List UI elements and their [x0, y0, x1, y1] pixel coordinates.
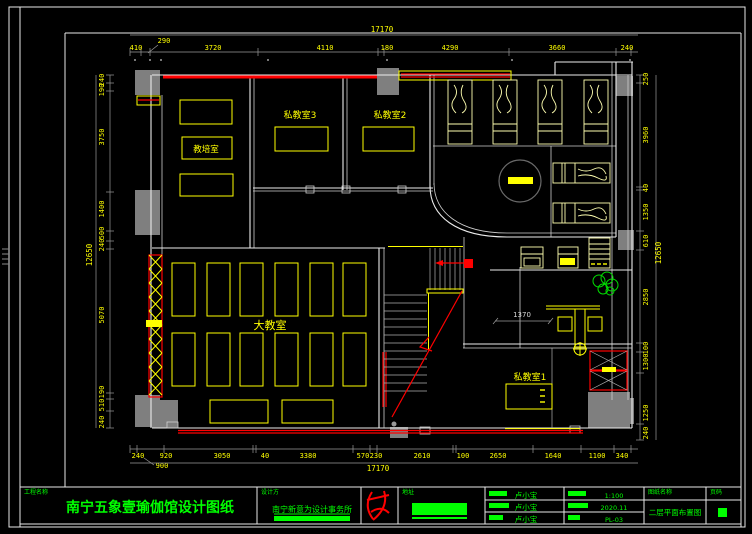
bed	[584, 80, 608, 144]
private-room-2: 私教室2	[363, 109, 414, 151]
address-redacted-block	[412, 503, 467, 515]
designer-underline-bar	[274, 516, 350, 521]
bed	[448, 80, 472, 144]
room-label-big-classroom: 大教室	[254, 318, 287, 332]
drawing-canvas[interactable]: 教培室 私教室3 私教室2	[0, 0, 752, 534]
dim-total: 17170	[371, 25, 394, 34]
dim-text: 40	[642, 184, 650, 192]
cad-sheet: 教培室 私教室3 私教室2	[0, 0, 752, 534]
title-block: 工程名称 南宁五象壹瑜伽馆设计图纸 设计方 南宁新意为设计事务所 地址 卢小宝 …	[20, 487, 741, 524]
address-label: 地址	[402, 488, 414, 496]
project-name-label: 工程名称	[24, 488, 48, 496]
designer-label: 设计方	[261, 488, 279, 496]
dim-text: 3050	[214, 452, 231, 460]
reception-area: 1370	[493, 272, 618, 356]
dim-text: 250	[642, 73, 650, 86]
room-label-private2: 私教室2	[374, 109, 407, 121]
dim-total: 12650	[654, 241, 663, 264]
dim-total: 17170	[367, 464, 390, 473]
wash-fixtures	[521, 238, 610, 268]
dimension-chain-left: 240 190 3750 1400 500 240 5070 190 510 2…	[85, 74, 114, 429]
dim-text: 240	[132, 452, 145, 460]
dim-text: 240	[98, 416, 106, 429]
dim-text: 570	[357, 452, 370, 460]
dim-text: 3660	[549, 44, 566, 52]
dim-text: 40	[261, 452, 269, 460]
dim-text: 920	[160, 452, 173, 460]
dim-text: 1350	[642, 204, 650, 221]
dim-text: 2850	[642, 289, 650, 306]
room-label-private3: 私教室3	[284, 109, 317, 121]
company-logo	[367, 491, 389, 520]
dim-text: 5070	[98, 307, 106, 324]
dim-text: 190	[98, 386, 106, 399]
dim-text: 4110	[317, 44, 334, 52]
date-value: 2020.11	[601, 504, 628, 512]
dimension-chain-bottom: 240 920 3050 40 3380 570 230 2610 100 26…	[130, 445, 638, 473]
training-room: 教培室	[180, 100, 233, 196]
scale-value: 1:100	[605, 492, 624, 500]
dimension-chain-top: 17170 410 290 3720 4110 180 4290 3660 24…	[130, 25, 638, 61]
dim-text: 240	[98, 239, 106, 252]
dim-text: 1640	[545, 452, 562, 460]
bed	[493, 80, 517, 144]
plant	[593, 272, 618, 295]
staff-role-block	[489, 515, 503, 520]
room-label-training: 教培室	[193, 144, 219, 155]
margin-ticks	[2, 249, 9, 264]
yoga-mats	[172, 263, 366, 423]
dim-text: 1250	[642, 405, 650, 422]
dim-text: 4290	[442, 44, 459, 52]
private-room-1: 私教室1	[506, 371, 552, 409]
page-number-block	[718, 508, 727, 517]
dim-text: 410	[130, 44, 143, 52]
dim-text: 180	[381, 44, 394, 52]
dim-text: 3720	[205, 44, 222, 52]
dim-text: 610	[642, 235, 650, 248]
tiny-annotation-marks	[540, 390, 545, 402]
big-classroom: 大教室	[172, 263, 366, 423]
staff-role-block	[489, 491, 507, 496]
desk	[575, 309, 585, 347]
staff-name: 卢小宝	[515, 514, 538, 524]
staff-name: 卢小宝	[515, 490, 538, 500]
hatched-wall	[146, 255, 162, 397]
dim-text: 1300	[642, 354, 650, 371]
duct-shaft	[590, 351, 627, 390]
bed-horizontal	[553, 163, 610, 183]
meta-label-block	[568, 503, 588, 508]
project-name: 南宁五象壹瑜伽馆设计图纸	[66, 499, 234, 516]
stair-direction-arrow	[392, 259, 473, 417]
private-room-3: 私教室3	[275, 109, 328, 151]
chair	[588, 317, 602, 331]
dim-text: 3960	[642, 127, 650, 144]
drawing-name-label: 图纸名称	[648, 488, 672, 496]
dimension-chain-right: 250 3960 40 1350 610 2850 100 1300 1250 …	[636, 73, 663, 440]
sheet-number: PL-03	[605, 516, 623, 524]
dim-total: 12650	[85, 243, 94, 266]
rest-beds	[448, 80, 610, 223]
round-table	[499, 160, 541, 202]
desk-dimension: 1370	[493, 311, 553, 324]
dim-text: 1400	[98, 201, 106, 218]
dim-text: 500	[98, 227, 106, 240]
chair	[558, 317, 572, 331]
stair-treads-upper	[430, 248, 460, 290]
address-underline	[412, 517, 467, 519]
dim-text: 100	[457, 452, 470, 460]
dim-text: 3750	[98, 129, 106, 146]
dim-text: 1100	[589, 452, 606, 460]
staircase	[384, 247, 473, 427]
dim-text: 510	[98, 399, 106, 412]
dim-text: 240	[642, 427, 650, 440]
stair-treads-lower	[384, 295, 427, 391]
witness-dots	[134, 59, 631, 61]
dim-text: 290	[158, 37, 171, 45]
designer-name: 南宁新意为设计事务所	[272, 504, 352, 514]
page-label: 页码	[710, 488, 722, 496]
dim-text: 340	[616, 452, 629, 460]
meta-label-block	[568, 515, 580, 520]
room-label-private1: 私教室1	[514, 371, 547, 383]
survey-dot	[392, 422, 397, 427]
dim-text: 2650	[490, 452, 507, 460]
dim-text: 190	[98, 84, 106, 97]
meta-label-block	[568, 491, 586, 496]
dim-text: 3380	[300, 452, 317, 460]
staff-name: 卢小宝	[515, 502, 538, 512]
bed	[538, 80, 562, 144]
drawing-name: 二层平面布置图	[649, 507, 702, 517]
dim-text: 230	[370, 452, 383, 460]
staff-role-block	[489, 503, 509, 508]
dim-text: 2610	[414, 452, 431, 460]
dim-text: 240	[621, 44, 634, 52]
bed-horizontal	[553, 203, 610, 223]
dim-text: 1370	[513, 311, 531, 319]
dim-text: 100	[642, 342, 650, 355]
